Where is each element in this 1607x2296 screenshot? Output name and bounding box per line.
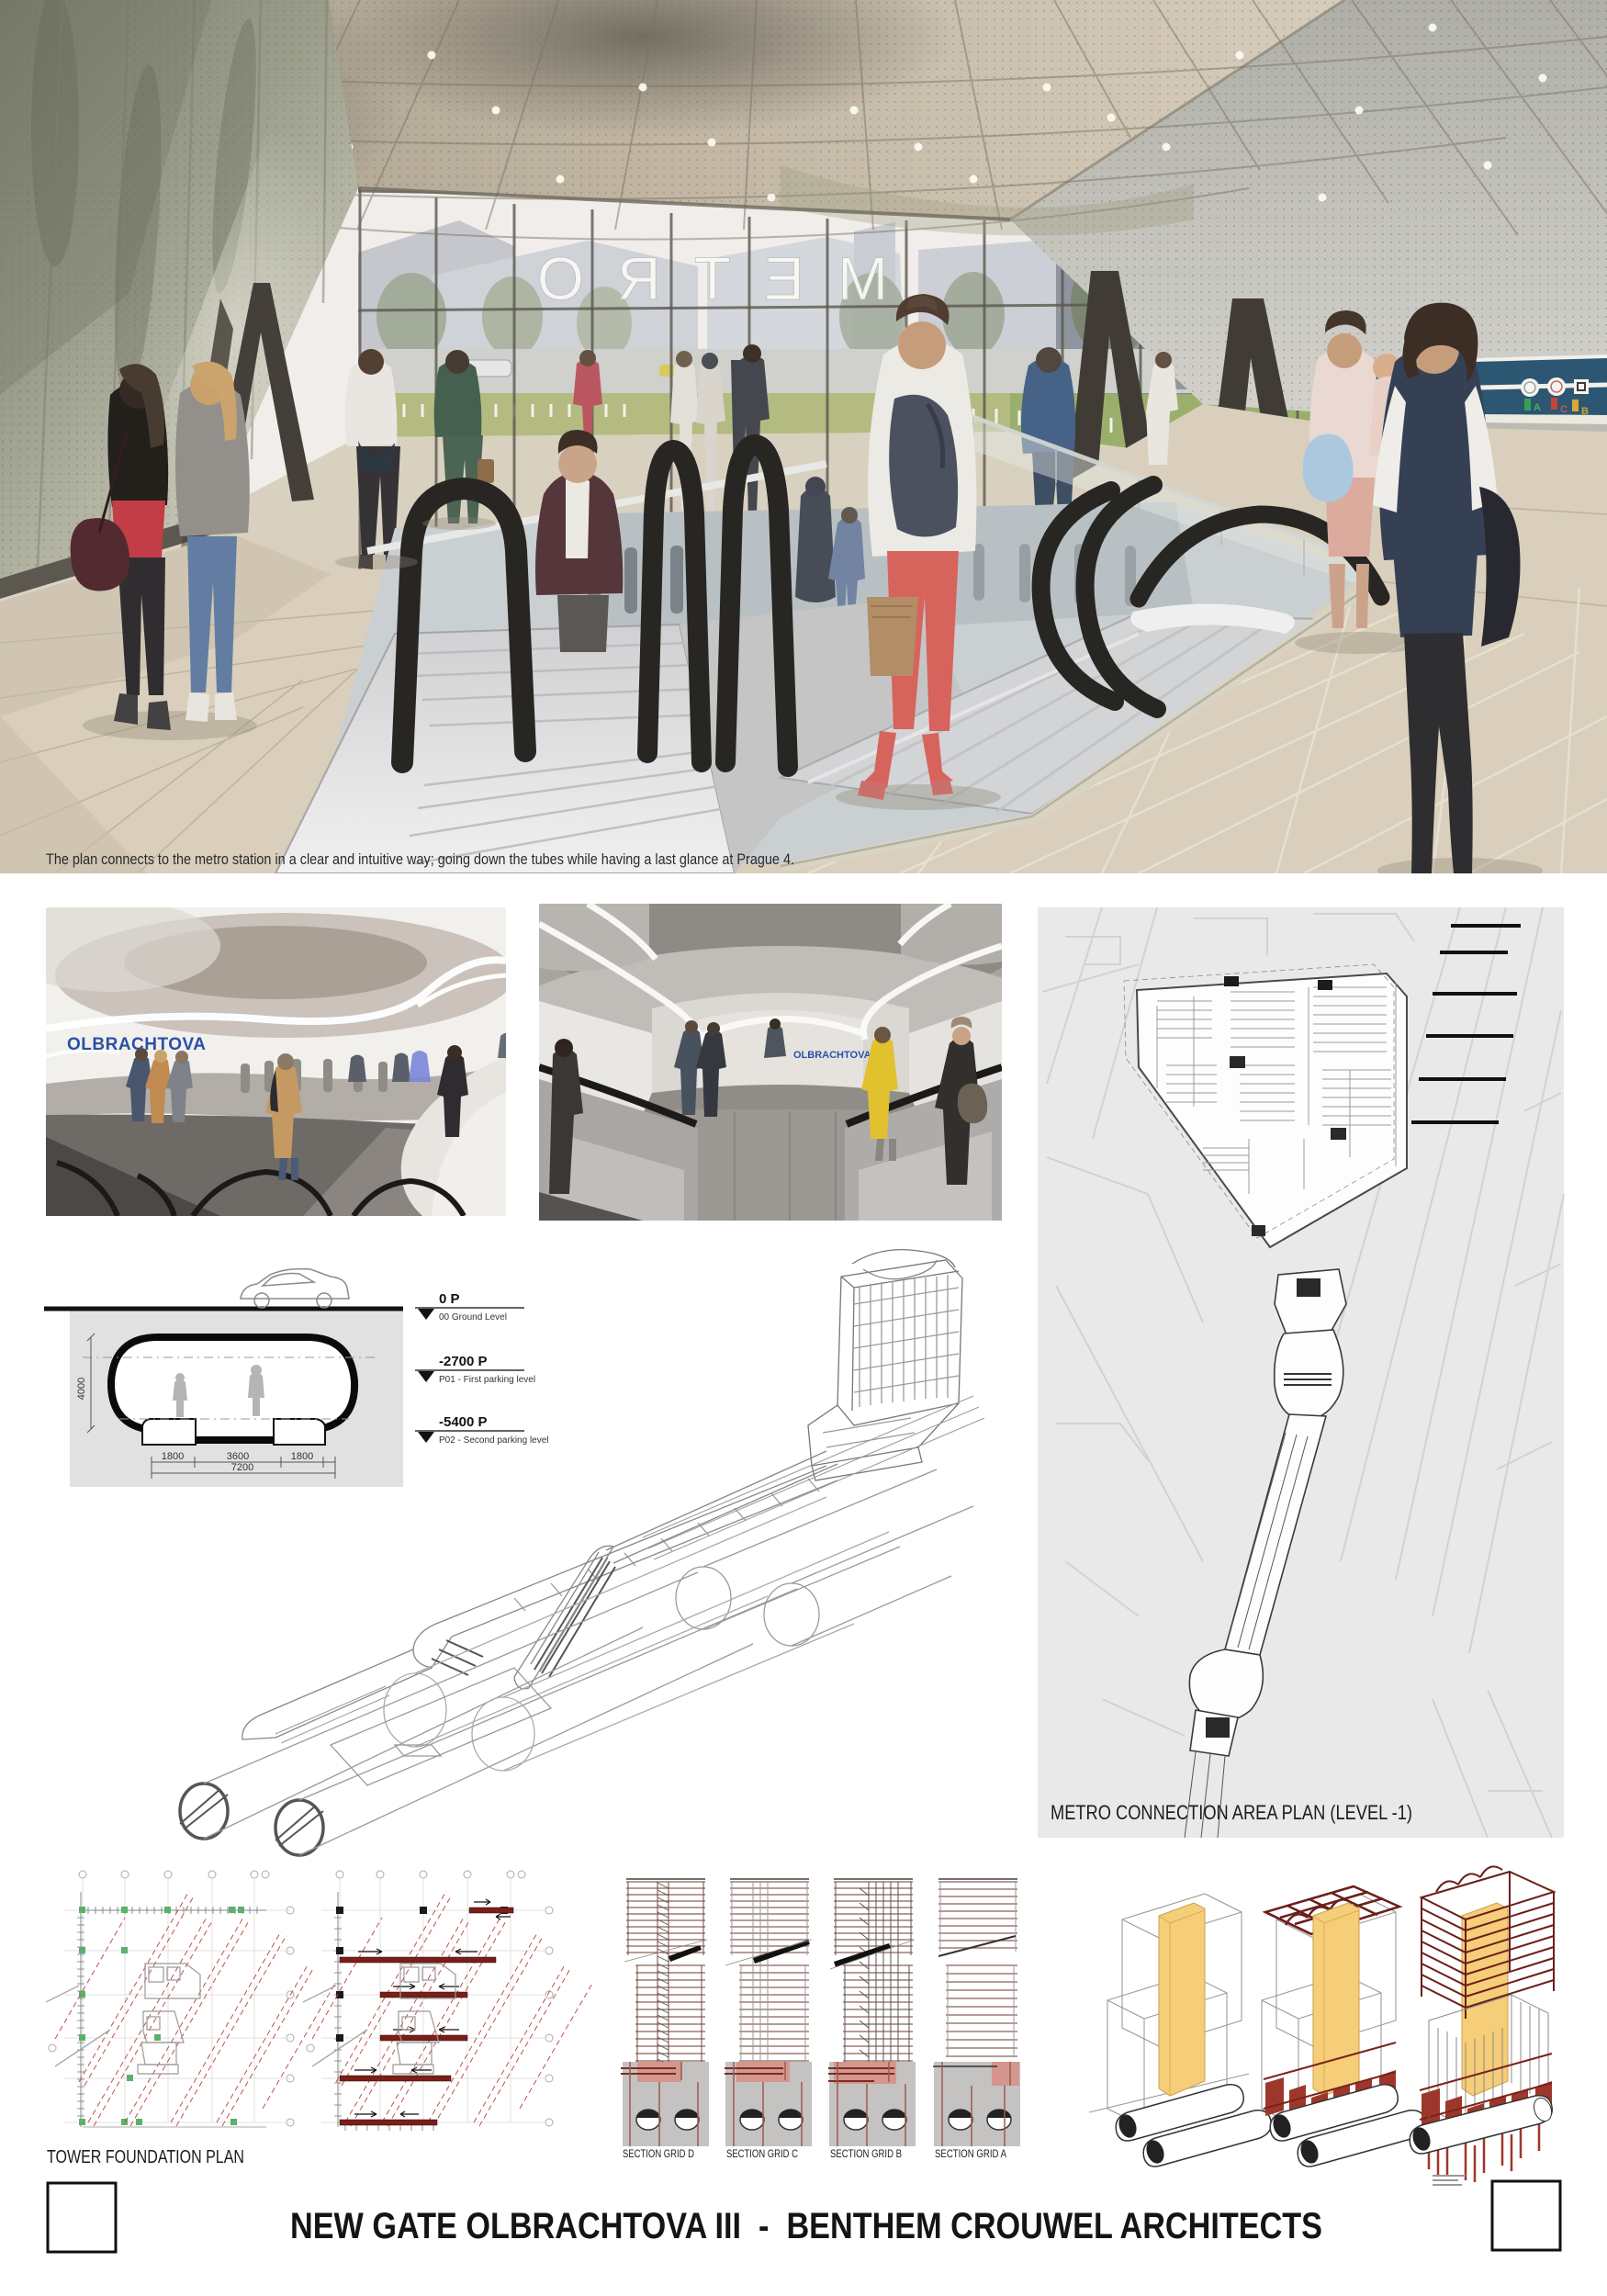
svg-text:SECTION GRID B: SECTION GRID B bbox=[830, 2147, 902, 2160]
svg-text:1800: 1800 bbox=[162, 1451, 184, 1462]
svg-text:OLBRACHTOVA: OLBRACHTOVA bbox=[793, 1050, 871, 1061]
svg-text:00 Ground Level: 00 Ground Level bbox=[439, 1312, 507, 1322]
svg-text:NEW GATE OLBRACHTOVA III - B: NEW GATE OLBRACHTOVA III - BENTHEM CROUW… bbox=[290, 2206, 1322, 2246]
svg-text:7200: 7200 bbox=[231, 1462, 253, 1473]
svg-text:P02 - Second parking level: P02 - Second parking level bbox=[439, 1435, 549, 1446]
svg-text:SECTION GRID A: SECTION GRID A bbox=[935, 2147, 1006, 2160]
svg-text:METRO CONNECTION AREA PLAN (LE: METRO CONNECTION AREA PLAN (LEVEL -1) bbox=[1051, 1801, 1412, 1824]
svg-text:SECTION GRID C: SECTION GRID C bbox=[726, 2147, 798, 2160]
svg-text:TOWER FOUNDATION PLAN: TOWER FOUNDATION PLAN bbox=[47, 2147, 244, 2167]
svg-text:1800: 1800 bbox=[291, 1451, 313, 1462]
svg-text:-2700 P: -2700 P bbox=[439, 1354, 488, 1369]
svg-text:3600: 3600 bbox=[227, 1451, 249, 1462]
svg-text:-5400 P: -5400 P bbox=[439, 1414, 488, 1430]
svg-text:0 P: 0 P bbox=[439, 1291, 460, 1307]
svg-text:The plan connects to the metro: The plan connects to the metro station i… bbox=[46, 850, 794, 868]
svg-text:4000: 4000 bbox=[76, 1378, 87, 1400]
svg-text:P01 - First parking level: P01 - First parking level bbox=[439, 1375, 535, 1385]
svg-text:SECTION GRID D: SECTION GRID D bbox=[623, 2147, 694, 2160]
